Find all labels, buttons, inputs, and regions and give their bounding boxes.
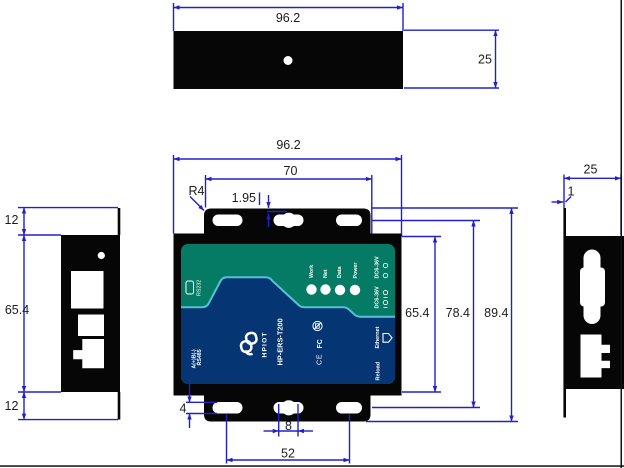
svg-text:96.2: 96.2 [276, 11, 300, 25]
svg-text:65.4: 65.4 [5, 303, 29, 317]
svg-text:Work: Work [309, 265, 315, 278]
svg-text:70: 70 [284, 164, 298, 178]
svg-text:52: 52 [281, 447, 295, 461]
svg-text:Ethernet: Ethernet [375, 326, 381, 348]
svg-text:Power: Power [353, 263, 359, 279]
svg-text:96.2: 96.2 [276, 138, 300, 152]
svg-text:1.95: 1.95 [232, 191, 256, 205]
svg-text:RS232: RS232 [197, 280, 203, 296]
svg-text:65.4: 65.4 [405, 306, 429, 320]
svg-text:CE: CE [317, 354, 324, 365]
svg-text:R4: R4 [189, 184, 205, 198]
svg-text:78.4: 78.4 [446, 306, 470, 320]
svg-text:HP-ERS-T200: HP-ERS-T200 [276, 318, 285, 365]
svg-text:25: 25 [478, 53, 492, 67]
svg-text:DC6-36V: DC6-36V [375, 256, 381, 279]
svg-text:DC6-36V: DC6-36V [375, 286, 381, 309]
svg-text:25: 25 [584, 163, 598, 177]
svg-text:4: 4 [180, 402, 187, 416]
svg-text:HPIOT: HPIOT [262, 331, 269, 357]
svg-text:RS485: RS485 [197, 349, 203, 365]
svg-text:8: 8 [285, 419, 292, 433]
svg-text:Data: Data [337, 266, 343, 278]
svg-text:89.4: 89.4 [484, 306, 508, 320]
svg-text:Reload: Reload [376, 361, 382, 380]
svg-text:12: 12 [5, 399, 19, 413]
svg-text:12: 12 [5, 213, 19, 227]
svg-text:FC: FC [317, 339, 324, 348]
svg-text:A(+)B(-): A(+)B(-) [192, 349, 198, 368]
svg-text:Net: Net [323, 269, 329, 278]
svg-text:1: 1 [568, 185, 575, 199]
